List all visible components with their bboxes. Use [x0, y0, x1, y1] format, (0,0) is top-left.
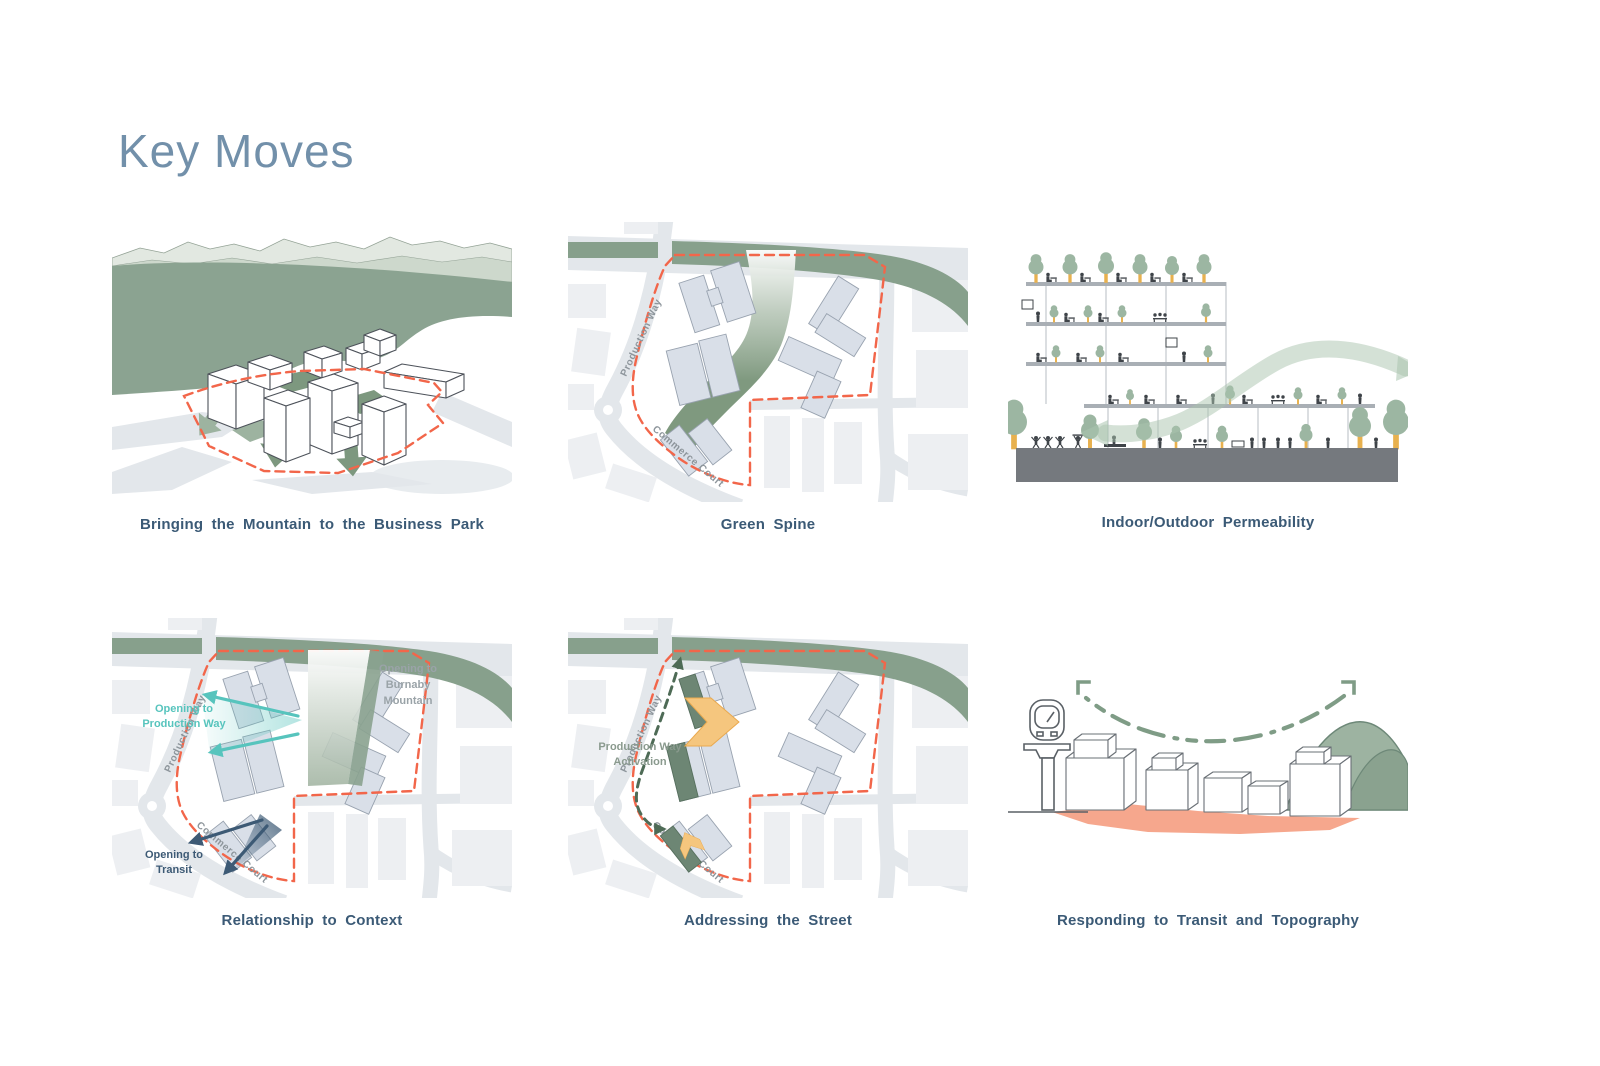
figure-relationship-context: Opening to Production Way Opening to Bur…	[112, 618, 512, 929]
context-diagram: Opening to Production Way Opening to Bur…	[112, 618, 512, 898]
transit-topography-diagram	[1008, 618, 1408, 898]
massing-buildings	[1066, 734, 1351, 816]
roof-level	[1029, 252, 1212, 283]
figure-addressing-street: Production Way Activation Addressing the…	[568, 618, 968, 929]
page-title: Key Moves	[118, 124, 355, 178]
label-production-way-activation: Production Way	[598, 741, 682, 753]
label-opening-burnaby: Opening to	[379, 663, 437, 675]
green-spine-diagram	[568, 222, 968, 502]
figure-bringing-mountain: Bringing the Mountain to the Business Pa…	[112, 222, 512, 533]
section-diagram	[1008, 220, 1408, 500]
floor-2	[1022, 300, 1211, 323]
figure-caption: Addressing the Street	[568, 912, 968, 929]
structure	[1026, 282, 1375, 448]
figure-caption: Relationship to Context	[112, 912, 512, 929]
svg-text:Activation: Activation	[613, 756, 666, 768]
svg-text:Burnaby: Burnaby	[386, 679, 432, 691]
figure-caption: Indoor/Outdoor Permeability	[1008, 514, 1408, 531]
mountain-axon-diagram	[112, 222, 512, 502]
response-arc	[1078, 682, 1354, 741]
svg-text:Mountain: Mountain	[384, 695, 433, 707]
street-activation-diagram: Production Way Activation	[568, 618, 968, 898]
ground-slab	[1016, 448, 1398, 482]
figure-permeability: Indoor/Outdoor Permeability	[1008, 220, 1408, 531]
svg-text:Production Way: Production Way	[142, 718, 226, 730]
figure-green-spine: Green Spine	[568, 222, 968, 533]
floor-3	[1036, 338, 1212, 362]
figure-caption: Green Spine	[568, 516, 968, 533]
figure-caption: Responding to Transit and Topography	[1008, 912, 1408, 929]
figure-caption: Bringing the Mountain to the Business Pa…	[112, 516, 512, 533]
figure-transit-topography: Responding to Transit and Topography	[1008, 618, 1408, 929]
key-moves-slide: Key Moves	[0, 0, 1600, 1066]
label-opening-transit: Opening to	[145, 849, 203, 861]
svg-text:Transit: Transit	[156, 864, 192, 876]
label-opening-production-way: Opening to	[155, 703, 213, 715]
